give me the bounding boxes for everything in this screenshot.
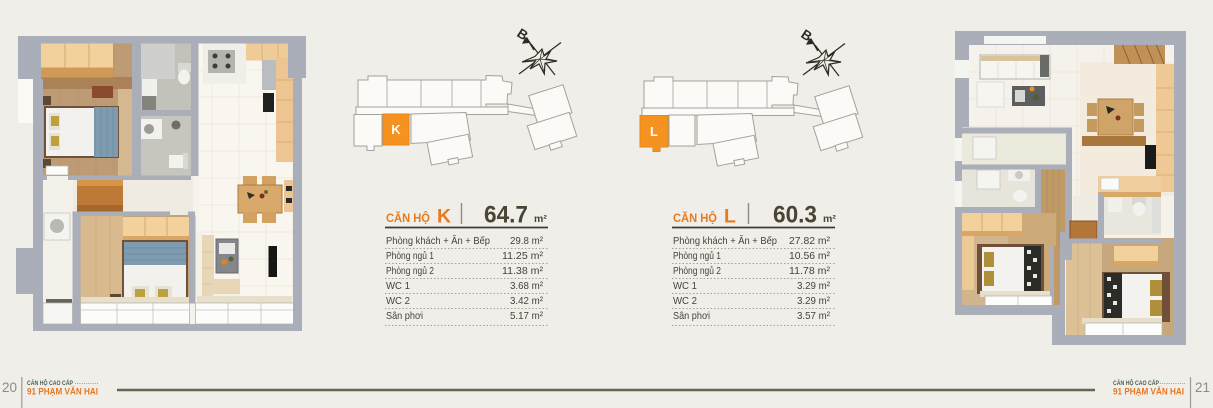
svg-text:3.29 m²: 3.29 m² bbox=[797, 280, 830, 292]
svg-text:Phòng ngủ 1: Phòng ngủ 1 bbox=[673, 250, 721, 262]
svg-text:WC 2: WC 2 bbox=[386, 295, 410, 307]
svg-text:Phòng ngủ 1: Phòng ngủ 1 bbox=[386, 250, 434, 262]
svg-text:60.3: 60.3 bbox=[773, 202, 817, 229]
svg-text:L: L bbox=[724, 206, 736, 228]
svg-text:Sân phơi: Sân phơi bbox=[673, 310, 710, 322]
svg-text:WC 1: WC 1 bbox=[673, 280, 697, 292]
svg-text:11.78 m²: 11.78 m² bbox=[789, 265, 830, 277]
svg-text:91 PHẠM VĂN HAI: 91 PHẠM VĂN HAI bbox=[27, 387, 98, 398]
svg-text:3.68 m²: 3.68 m² bbox=[510, 280, 543, 292]
svg-text:WC 2: WC 2 bbox=[673, 295, 697, 307]
svg-text:m²: m² bbox=[823, 213, 836, 225]
svg-text:K: K bbox=[437, 206, 451, 228]
svg-text:CĂN HỘ: CĂN HỘ bbox=[386, 212, 430, 225]
svg-text:64.7: 64.7 bbox=[484, 202, 528, 229]
svg-text:Sân phơi: Sân phơi bbox=[386, 310, 423, 322]
svg-text:m²: m² bbox=[534, 213, 547, 225]
svg-text:L: L bbox=[650, 124, 658, 139]
svg-text:21: 21 bbox=[1195, 380, 1210, 395]
svg-text:WC 1: WC 1 bbox=[386, 280, 410, 292]
svg-text:20: 20 bbox=[2, 380, 17, 395]
svg-text:11.38 m²: 11.38 m² bbox=[502, 265, 543, 277]
svg-text:K: K bbox=[391, 122, 401, 137]
svg-text:91 PHẠM VĂN HAI: 91 PHẠM VĂN HAI bbox=[1113, 387, 1184, 398]
svg-text:3.42 m²: 3.42 m² bbox=[510, 295, 543, 307]
svg-text:Phòng khách + Ăn + Bếp: Phòng khách + Ăn + Bếp bbox=[673, 234, 777, 247]
svg-text:Phòng khách + Ăn + Bếp: Phòng khách + Ăn + Bếp bbox=[386, 234, 490, 247]
svg-text:CĂN HỘ: CĂN HỘ bbox=[673, 212, 717, 225]
svg-text:27.82 m²: 27.82 m² bbox=[789, 235, 830, 247]
svg-text:Phòng ngủ 2: Phòng ngủ 2 bbox=[673, 265, 721, 277]
svg-text:Phòng ngủ 2: Phòng ngủ 2 bbox=[386, 265, 434, 277]
svg-text:29.8 m²: 29.8 m² bbox=[510, 235, 543, 247]
svg-text:3.57 m²: 3.57 m² bbox=[797, 310, 830, 322]
svg-text:11.25 m²: 11.25 m² bbox=[502, 250, 543, 262]
svg-text:10.56 m²: 10.56 m² bbox=[789, 250, 830, 262]
svg-text:5.17 m²: 5.17 m² bbox=[510, 310, 543, 322]
svg-text:3.29 m²: 3.29 m² bbox=[797, 295, 830, 307]
